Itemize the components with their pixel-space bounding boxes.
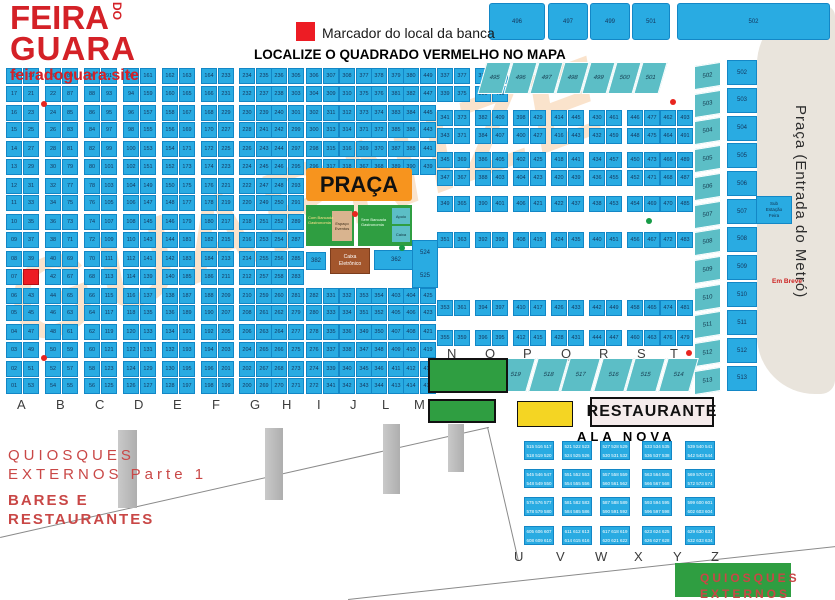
ala-nova-stall-block[interactable]: 623 624 625626 627 628 bbox=[642, 526, 672, 545]
stall-cell[interactable]: 408 bbox=[403, 324, 419, 340]
stall-cell[interactable]: 426 bbox=[551, 300, 567, 316]
stall-cell[interactable]: 112 bbox=[123, 251, 139, 267]
stall-cell[interactable]: 96 bbox=[123, 105, 139, 121]
stall-cell[interactable]: 146 bbox=[162, 214, 178, 230]
stall-cell[interactable]: 13 bbox=[6, 159, 22, 175]
stall-cell[interactable]: 47 bbox=[23, 324, 39, 340]
stall-cell[interactable]: 76 bbox=[84, 195, 100, 211]
stall-cell[interactable]: 220 bbox=[239, 195, 255, 211]
stall-cell[interactable]: 236 bbox=[271, 68, 287, 84]
stall-cell[interactable]: 111 bbox=[101, 251, 117, 267]
stall-cell[interactable]: 346 bbox=[371, 361, 387, 377]
stall-cell[interactable]: 491 bbox=[677, 128, 693, 144]
stall-cell[interactable]: 483 bbox=[677, 232, 693, 248]
stall-cell[interactable]: 404 bbox=[403, 288, 419, 304]
stall-cell[interactable]: 194 bbox=[201, 342, 217, 358]
stall-cell[interactable]: 75 bbox=[62, 195, 78, 211]
stall-cell[interactable]: 109 bbox=[101, 232, 117, 248]
stall-cell[interactable]: 156 bbox=[162, 122, 178, 138]
ala-nova-stall-block[interactable]: 605 606 607608 609 610 bbox=[524, 526, 554, 545]
stall-cell[interactable]: 157 bbox=[140, 105, 156, 121]
stall-cell[interactable]: 244 bbox=[271, 141, 287, 157]
top-block-stall[interactable]: 499 bbox=[590, 3, 630, 40]
stall-cell[interactable]: 474 bbox=[660, 300, 676, 316]
stall-cell[interactable]: 464 bbox=[660, 128, 676, 144]
stall-cell[interactable]: 247 bbox=[256, 178, 272, 194]
site-link[interactable]: feiradoguara.site bbox=[10, 67, 139, 85]
stall-cell[interactable]: 201 bbox=[218, 361, 234, 377]
ala-nova-stall-block[interactable]: 599 600 601602 603 604 bbox=[685, 497, 715, 516]
stall-cell[interactable]: 139 bbox=[140, 269, 156, 285]
stall-cell[interactable]: 414 bbox=[403, 378, 419, 394]
stall-cell[interactable]: 417 bbox=[530, 300, 546, 316]
stall-cell[interactable]: 122 bbox=[123, 342, 139, 358]
stall-cell[interactable]: 202 bbox=[239, 361, 255, 377]
stall-cell[interactable]: 441 bbox=[420, 141, 436, 157]
stall-cell[interactable]: 439 bbox=[420, 159, 436, 175]
stall-cell[interactable]: 352 bbox=[371, 305, 387, 321]
stall-cell[interactable]: 311 bbox=[323, 105, 339, 121]
stall-cell[interactable]: 300 bbox=[306, 122, 322, 138]
top-block-stall[interactable]: 496 bbox=[489, 3, 545, 40]
stall-cell[interactable]: 341 bbox=[323, 378, 339, 394]
stall-cell[interactable]: 338 bbox=[339, 342, 355, 358]
stall-cell[interactable]: 387 bbox=[388, 141, 404, 157]
restaurante-box[interactable]: RESTAURANTE bbox=[590, 397, 714, 427]
stall-cell[interactable]: 506 bbox=[727, 171, 757, 196]
stall-cell[interactable]: 171 bbox=[179, 141, 195, 157]
stall-cell[interactable]: 164 bbox=[201, 68, 217, 84]
stall-cell[interactable]: 339 bbox=[323, 361, 339, 377]
stall-cell[interactable]: 489 bbox=[677, 152, 693, 168]
stall-cell[interactable]: 363 bbox=[454, 232, 470, 248]
stall-cell[interactable]: 116 bbox=[123, 288, 139, 304]
stall-cell[interactable]: 266 bbox=[271, 342, 287, 358]
stall-cell[interactable]: 301 bbox=[288, 105, 304, 121]
stall-trapezoid[interactable]: 513 bbox=[694, 367, 721, 395]
stall-cell[interactable]: 09 bbox=[6, 232, 22, 248]
stall-cell[interactable]: 86 bbox=[84, 105, 100, 121]
stall-cell[interactable]: 175 bbox=[179, 178, 195, 194]
stall-cell[interactable]: 419 bbox=[530, 232, 546, 248]
stall-cell[interactable]: 243 bbox=[256, 141, 272, 157]
stall-cell[interactable]: 227 bbox=[218, 122, 234, 138]
stall-cell[interactable]: 68 bbox=[84, 269, 100, 285]
stall-cell[interactable]: 485 bbox=[677, 196, 693, 212]
stall-cell[interactable]: 469 bbox=[644, 196, 660, 212]
ala-nova-stall-block[interactable]: 611 612 613614 615 616 bbox=[562, 526, 592, 545]
stall-cell[interactable]: 180 bbox=[201, 214, 217, 230]
stall-cell[interactable]: 154 bbox=[162, 141, 178, 157]
stall-cell[interactable]: 213 bbox=[218, 251, 234, 267]
stall-cell[interactable]: 218 bbox=[239, 214, 255, 230]
stall-cell[interactable]: 82 bbox=[84, 141, 100, 157]
stall-cell[interactable]: 71 bbox=[62, 232, 78, 248]
ala-nova-stall-block[interactable]: 617 618 619620 621 622 bbox=[600, 526, 630, 545]
stall-cell[interactable]: 405 bbox=[388, 305, 404, 321]
stall-cell[interactable]: 51 bbox=[23, 361, 39, 377]
stall-cell[interactable]: 386 bbox=[475, 152, 491, 168]
stall-cell[interactable]: 442 bbox=[589, 300, 605, 316]
ala-nova-stall-block[interactable]: 575 576 577578 579 580 bbox=[524, 497, 554, 516]
stall-cell[interactable]: 439 bbox=[568, 170, 584, 186]
stall-cell[interactable]: 359 bbox=[454, 330, 470, 346]
stall-cell[interactable]: 158 bbox=[162, 105, 178, 121]
top-block-stall[interactable]: 497 bbox=[548, 3, 588, 40]
stall-cell[interactable]: 105 bbox=[101, 195, 117, 211]
stall-cell[interactable]: 505 bbox=[727, 143, 757, 168]
stall-cell[interactable]: 216 bbox=[239, 232, 255, 248]
stall-cell[interactable]: 34 bbox=[45, 195, 61, 211]
stall-cell[interactable]: 282 bbox=[306, 288, 322, 304]
stall-cell[interactable]: 221 bbox=[218, 178, 234, 194]
stall-cell[interactable]: 35 bbox=[23, 214, 39, 230]
stall-cell[interactable]: 275 bbox=[288, 342, 304, 358]
stall-cell[interactable]: 23 bbox=[23, 105, 39, 121]
stall-trapezoid[interactable]: 511 bbox=[694, 311, 721, 339]
stall-cell[interactable]: 176 bbox=[201, 178, 217, 194]
stall-cell[interactable]: 343 bbox=[437, 128, 453, 144]
stall-cell[interactable]: 268 bbox=[271, 361, 287, 377]
stall-cell[interactable]: 209 bbox=[218, 288, 234, 304]
stall-cell[interactable]: 477 bbox=[644, 110, 660, 126]
stall-cell[interactable]: 225 bbox=[218, 141, 234, 157]
stall-cell[interactable]: 467 bbox=[644, 232, 660, 248]
stall-cell[interactable]: 427 bbox=[530, 128, 546, 144]
stall-cell[interactable]: 115 bbox=[101, 288, 117, 304]
stall-cell[interactable]: 25 bbox=[23, 122, 39, 138]
stall-cell[interactable]: 256 bbox=[271, 251, 287, 267]
stall-cell[interactable]: 271 bbox=[288, 378, 304, 394]
stall-cell[interactable]: 117 bbox=[101, 305, 117, 321]
stall-cell[interactable]: 200 bbox=[239, 378, 255, 394]
stall-cell[interactable]: 349 bbox=[356, 324, 372, 340]
stall-cell[interactable]: 80 bbox=[84, 159, 100, 175]
stall-cell[interactable]: 223 bbox=[218, 159, 234, 175]
stall-cell[interactable]: 295 bbox=[288, 159, 304, 175]
stall-cell[interactable]: 446 bbox=[627, 110, 643, 126]
ala-nova-stall-block[interactable]: 551 552 553554 555 556 bbox=[562, 469, 592, 488]
stall-cell[interactable]: 461 bbox=[606, 110, 622, 126]
stall-cell[interactable]: 378 bbox=[371, 68, 387, 84]
stall-cell[interactable]: 69 bbox=[62, 251, 78, 267]
caixa-eletronico[interactable]: CaixaEletrônico bbox=[330, 248, 370, 274]
stall-cell[interactable]: 466 bbox=[660, 152, 676, 168]
stall-cell[interactable]: 373 bbox=[356, 105, 372, 121]
stall-cell[interactable]: 193 bbox=[179, 342, 195, 358]
stall-cell[interactable]: 441 bbox=[568, 152, 584, 168]
red-marker-stall[interactable] bbox=[23, 269, 39, 285]
stall-cell[interactable]: 422 bbox=[551, 196, 567, 212]
stall-cell[interactable]: 198 bbox=[201, 378, 217, 394]
stall-cell[interactable]: 445 bbox=[420, 105, 436, 121]
stall-cell[interactable]: 83 bbox=[62, 122, 78, 138]
stall-cell[interactable]: 421 bbox=[530, 196, 546, 212]
stall-cell[interactable]: 149 bbox=[140, 178, 156, 194]
stall-cell[interactable]: 415 bbox=[530, 330, 546, 346]
stall-cell[interactable]: 345 bbox=[437, 152, 453, 168]
stall-cell[interactable]: 57 bbox=[62, 361, 78, 377]
stall-cell[interactable]: 455 bbox=[606, 170, 622, 186]
stall-cell[interactable]: 502 bbox=[727, 60, 757, 85]
stall-cell[interactable]: 108 bbox=[123, 214, 139, 230]
stall-cell[interactable]: 214 bbox=[239, 251, 255, 267]
stall-cell[interactable]: 155 bbox=[140, 122, 156, 138]
stall-cell[interactable]: 98 bbox=[123, 122, 139, 138]
stall-cell[interactable]: 447 bbox=[606, 330, 622, 346]
stall-cell[interactable]: 375 bbox=[356, 86, 372, 102]
stall-cell[interactable]: 31 bbox=[23, 178, 39, 194]
caixa-box[interactable]: Caixa bbox=[392, 226, 410, 242]
stall-cell[interactable]: 361 bbox=[454, 300, 470, 316]
stall-cell[interactable]: 152 bbox=[162, 159, 178, 175]
stall-cell[interactable]: 163 bbox=[179, 68, 195, 84]
stall-cell[interactable]: 276 bbox=[306, 342, 322, 358]
stall-trapezoid[interactable]: 504 bbox=[694, 117, 721, 145]
stall-cell[interactable]: 264 bbox=[271, 324, 287, 340]
stall-cell[interactable]: 278 bbox=[306, 324, 322, 340]
stall-cell[interactable]: 376 bbox=[371, 86, 387, 102]
stall-cell[interactable]: 310 bbox=[339, 86, 355, 102]
top-block-stall[interactable]: 501 bbox=[632, 3, 670, 40]
stall-cell[interactable]: 398 bbox=[513, 110, 529, 126]
stall-cell[interactable]: 130 bbox=[162, 361, 178, 377]
stall-cell[interactable]: 421 bbox=[420, 324, 436, 340]
stall-cell[interactable]: 412 bbox=[513, 330, 529, 346]
stall-cell[interactable]: 26 bbox=[45, 122, 61, 138]
stall-cell[interactable]: 270 bbox=[271, 378, 287, 394]
stall-cell[interactable]: 347 bbox=[437, 170, 453, 186]
stall-524-525[interactable]: 524525 bbox=[412, 240, 438, 288]
stall-cell[interactable]: 189 bbox=[179, 305, 195, 321]
stall-cell[interactable]: 94 bbox=[123, 86, 139, 102]
stall-cell[interactable]: 72 bbox=[84, 232, 100, 248]
stall-cell[interactable]: 184 bbox=[201, 251, 217, 267]
stall-cell[interactable]: 308 bbox=[339, 68, 355, 84]
stall-cell[interactable]: 289 bbox=[288, 214, 304, 230]
stall-cell[interactable]: 141 bbox=[140, 251, 156, 267]
stall-cell[interactable]: 46 bbox=[45, 305, 61, 321]
stall-cell[interactable]: 367 bbox=[454, 170, 470, 186]
stall-cell[interactable]: 128 bbox=[162, 378, 178, 394]
stall-cell[interactable]: 348 bbox=[371, 342, 387, 358]
stall-cell[interactable]: 125 bbox=[101, 378, 117, 394]
stall-cell[interactable]: 195 bbox=[179, 361, 195, 377]
stall-cell[interactable]: 381 bbox=[388, 86, 404, 102]
stall-cell[interactable]: 79 bbox=[62, 159, 78, 175]
stall-cell[interactable]: 27 bbox=[23, 141, 39, 157]
stall-cell[interactable]: 380 bbox=[403, 68, 419, 84]
stall-cell[interactable]: 433 bbox=[568, 300, 584, 316]
stall-cell[interactable]: 183 bbox=[179, 251, 195, 267]
stall-cell[interactable]: 50 bbox=[45, 342, 61, 358]
stall-cell[interactable]: 142 bbox=[162, 251, 178, 267]
stall-cell[interactable]: 277 bbox=[288, 324, 304, 340]
stall-cell[interactable]: 67 bbox=[62, 269, 78, 285]
praca-area[interactable]: PRAÇA bbox=[306, 168, 412, 201]
stall-cell[interactable]: 49 bbox=[23, 342, 39, 358]
stall-cell[interactable]: 293 bbox=[288, 178, 304, 194]
stall-cell[interactable]: 153 bbox=[140, 141, 156, 157]
stall-cell[interactable]: 217 bbox=[218, 214, 234, 230]
stall-cell[interactable]: 510 bbox=[727, 282, 757, 307]
stall-cell[interactable]: 228 bbox=[239, 122, 255, 138]
stall-cell[interactable]: 407 bbox=[492, 128, 508, 144]
stall-cell[interactable]: 341 bbox=[437, 110, 453, 126]
stall-cell[interactable]: 369 bbox=[356, 141, 372, 157]
stall-cell[interactable]: 191 bbox=[179, 324, 195, 340]
stall-cell[interactable]: 342 bbox=[339, 378, 355, 394]
stall-cell[interactable]: 39 bbox=[23, 251, 39, 267]
stall-cell[interactable]: 429 bbox=[530, 110, 546, 126]
stall-cell[interactable]: 215 bbox=[218, 232, 234, 248]
stall-cell[interactable]: 150 bbox=[162, 178, 178, 194]
stall-cell[interactable]: 186 bbox=[201, 269, 217, 285]
stall-cell[interactable]: 304 bbox=[306, 86, 322, 102]
stall-cell[interactable]: 306 bbox=[306, 68, 322, 84]
stall-trapezoid[interactable]: 508 bbox=[694, 228, 721, 256]
stall-trapezoid[interactable]: 509 bbox=[694, 256, 721, 284]
stall-cell[interactable]: 12 bbox=[6, 178, 22, 194]
stall-cell[interactable]: 443 bbox=[568, 128, 584, 144]
stall-cell[interactable]: 408 bbox=[513, 232, 529, 248]
stall-cell[interactable]: 511 bbox=[727, 310, 757, 335]
stall-cell[interactable]: 257 bbox=[256, 269, 272, 285]
stall-cell[interactable]: 316 bbox=[339, 141, 355, 157]
stall-cell[interactable]: 462 bbox=[660, 110, 676, 126]
stall-cell[interactable]: 399 bbox=[492, 232, 508, 248]
stall-cell[interactable]: 85 bbox=[62, 105, 78, 121]
stall-cell[interactable]: 371 bbox=[454, 128, 470, 144]
stall-cell[interactable]: 375 bbox=[454, 86, 470, 102]
stall-cell[interactable]: 239 bbox=[256, 105, 272, 121]
green-area-2[interactable] bbox=[428, 399, 496, 423]
stall-cell[interactable]: 265 bbox=[256, 342, 272, 358]
stall-cell[interactable]: 444 bbox=[589, 330, 605, 346]
stall-cell[interactable]: 414 bbox=[551, 110, 567, 126]
stall-cell[interactable]: 159 bbox=[140, 86, 156, 102]
stall-cell[interactable]: 465 bbox=[644, 300, 660, 316]
stall-cell[interactable]: 211 bbox=[218, 269, 234, 285]
stall-cell[interactable]: 78 bbox=[84, 178, 100, 194]
stall-cell[interactable]: 148 bbox=[162, 195, 178, 211]
stall-cell[interactable]: 261 bbox=[256, 305, 272, 321]
stall-cell[interactable]: 28 bbox=[45, 141, 61, 157]
stall-cell[interactable]: 107 bbox=[101, 214, 117, 230]
stall-cell[interactable]: 353 bbox=[356, 288, 372, 304]
stall-cell[interactable]: 08 bbox=[6, 251, 22, 267]
stall-cell[interactable]: 140 bbox=[162, 269, 178, 285]
stall-cell[interactable]: 179 bbox=[179, 214, 195, 230]
stall-cell[interactable]: 448 bbox=[627, 128, 643, 144]
stall-cell[interactable]: 406 bbox=[513, 196, 529, 212]
stall-cell[interactable]: 513 bbox=[727, 366, 757, 391]
stall-cell[interactable]: 44 bbox=[45, 288, 61, 304]
stall-cell[interactable]: 196 bbox=[201, 361, 217, 377]
stall-cell[interactable]: 100 bbox=[123, 141, 139, 157]
stall-cell[interactable]: 04 bbox=[6, 324, 22, 340]
stall-cell[interactable]: 416 bbox=[551, 128, 567, 144]
stall-cell[interactable]: 127 bbox=[140, 378, 156, 394]
stall-cell[interactable]: 339 bbox=[437, 86, 453, 102]
stall-cell[interactable]: 147 bbox=[140, 195, 156, 211]
stall-cell[interactable]: 178 bbox=[201, 195, 217, 211]
stall-cell[interactable]: 03 bbox=[6, 342, 22, 358]
stall-cell[interactable]: 170 bbox=[201, 122, 217, 138]
stall-trapezoid[interactable]: 503 bbox=[694, 90, 721, 118]
stall-cell[interactable]: 382 bbox=[403, 86, 419, 102]
stall-cell[interactable]: 224 bbox=[239, 159, 255, 175]
stall-cell[interactable]: 52 bbox=[45, 361, 61, 377]
stall-cell[interactable]: 411 bbox=[388, 361, 404, 377]
stall-cell[interactable]: 337 bbox=[437, 68, 453, 84]
stall-cell[interactable]: 248 bbox=[271, 178, 287, 194]
stall-cell[interactable]: 253 bbox=[256, 232, 272, 248]
stall-cell[interactable]: 374 bbox=[371, 105, 387, 121]
stall-cell[interactable]: 21 bbox=[23, 86, 39, 102]
stall-cell[interactable]: 260 bbox=[271, 288, 287, 304]
stall-cell[interactable]: 252 bbox=[271, 214, 287, 230]
stall-cell[interactable]: 15 bbox=[6, 122, 22, 138]
stall-cell[interactable]: 240 bbox=[271, 105, 287, 121]
ala-nova-stall-block[interactable]: 629 630 631632 633 634 bbox=[685, 526, 715, 545]
stall-cell[interactable]: 235 bbox=[256, 68, 272, 84]
stall-cell[interactable]: 222 bbox=[239, 178, 255, 194]
stall-cell[interactable]: 402 bbox=[513, 152, 529, 168]
stall-cell[interactable]: 382 bbox=[475, 110, 491, 126]
stall-cell[interactable]: 64 bbox=[84, 305, 100, 321]
stall-cell[interactable]: 168 bbox=[201, 105, 217, 121]
stall-cell[interactable]: 181 bbox=[179, 232, 195, 248]
stall-cell[interactable]: 190 bbox=[201, 305, 217, 321]
stall-cell[interactable]: 210 bbox=[239, 288, 255, 304]
stall-cell[interactable]: 161 bbox=[140, 68, 156, 84]
stall-cell[interactable]: 297 bbox=[288, 141, 304, 157]
stall-cell[interactable]: 58 bbox=[84, 361, 100, 377]
stall-cell[interactable]: 187 bbox=[179, 288, 195, 304]
stall-cell[interactable]: 344 bbox=[371, 378, 387, 394]
stall-cell[interactable]: 177 bbox=[179, 195, 195, 211]
stall-cell[interactable]: 42 bbox=[45, 269, 61, 285]
stall-cell[interactable]: 406 bbox=[403, 305, 419, 321]
stall-cell[interactable]: 102 bbox=[123, 159, 139, 175]
stall-cell[interactable]: 307 bbox=[323, 68, 339, 84]
stall-cell[interactable]: 245 bbox=[256, 159, 272, 175]
stall-cell[interactable]: 459 bbox=[606, 128, 622, 144]
stall-cell[interactable]: 412 bbox=[403, 361, 419, 377]
stall-cell[interactable]: 97 bbox=[101, 122, 117, 138]
stall-cell[interactable]: 432 bbox=[589, 128, 605, 144]
stall-cell[interactable]: 418 bbox=[551, 152, 567, 168]
stall-cell[interactable]: 38 bbox=[45, 232, 61, 248]
stall-cell[interactable]: 144 bbox=[162, 232, 178, 248]
stall-cell[interactable]: 403 bbox=[492, 170, 508, 186]
stall-cell[interactable]: 33 bbox=[23, 195, 39, 211]
stall-cell[interactable]: 136 bbox=[162, 305, 178, 321]
stall-cell[interactable]: 65 bbox=[62, 288, 78, 304]
stall-cell[interactable]: 131 bbox=[140, 342, 156, 358]
stall-cell[interactable]: 388 bbox=[403, 141, 419, 157]
stall-cell[interactable]: 110 bbox=[123, 232, 139, 248]
stall-cell[interactable]: 232 bbox=[239, 86, 255, 102]
stall-cell[interactable]: 313 bbox=[323, 122, 339, 138]
stall-cell[interactable]: 397 bbox=[492, 300, 508, 316]
stall-cell[interactable]: 207 bbox=[218, 305, 234, 321]
stall-cell[interactable]: 129 bbox=[140, 361, 156, 377]
stall-cell[interactable]: 443 bbox=[420, 122, 436, 138]
stall-cell[interactable]: 87 bbox=[62, 86, 78, 102]
stall-cell[interactable]: 403 bbox=[388, 288, 404, 304]
